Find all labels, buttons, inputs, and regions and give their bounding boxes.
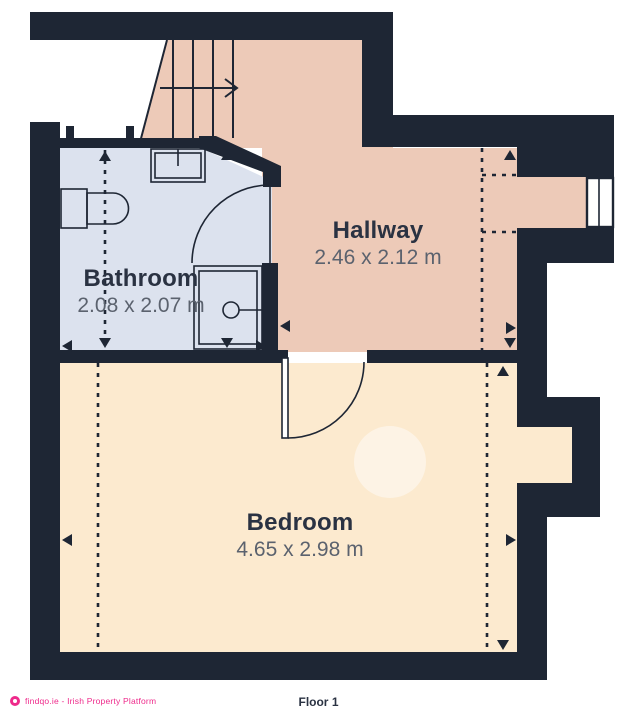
stair-wall-stub [66,126,74,138]
floorplan-page: Bathroom 2.08 x 2.07 m Hallway 2.46 x 2.… [0,0,637,720]
floor-label: Floor 1 [0,695,637,709]
bedroom-alcove-floor [518,427,572,483]
watermark-circle [354,426,426,498]
stair-wall-stub [126,126,134,138]
window [587,178,613,227]
stairs-floor [30,40,393,148]
hallway-floor [262,148,517,352]
floorplan-drawing [0,0,637,690]
window-bay-floor [517,177,586,228]
bedroom-floor [60,363,518,652]
footer: findqo.ie - Irish Property Platform Floo… [0,692,637,720]
